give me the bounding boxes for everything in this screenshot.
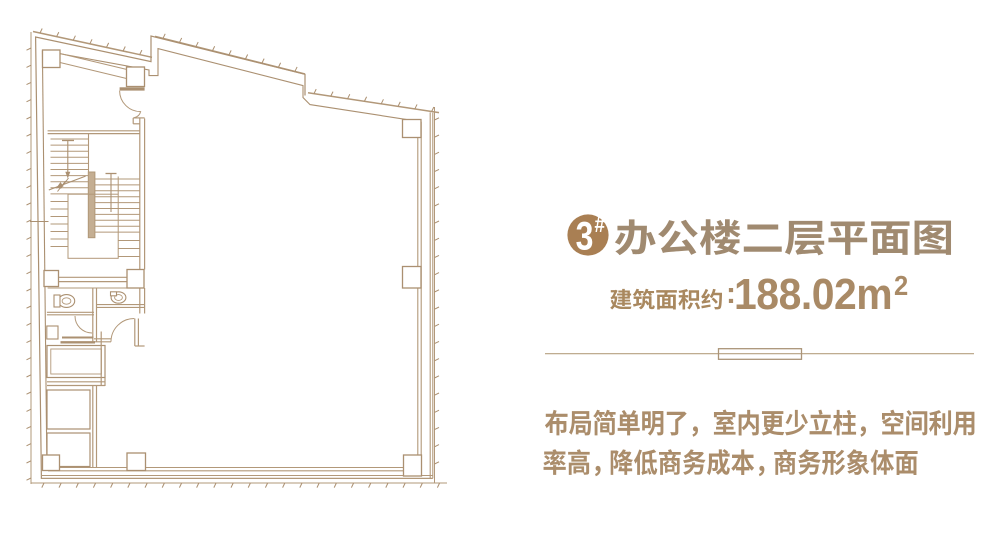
svg-text:2: 2 [894,270,908,301]
svg-text:188.02m: 188.02m [734,271,892,320]
svg-text:#: # [595,212,606,237]
svg-text:3: 3 [576,213,594,258]
